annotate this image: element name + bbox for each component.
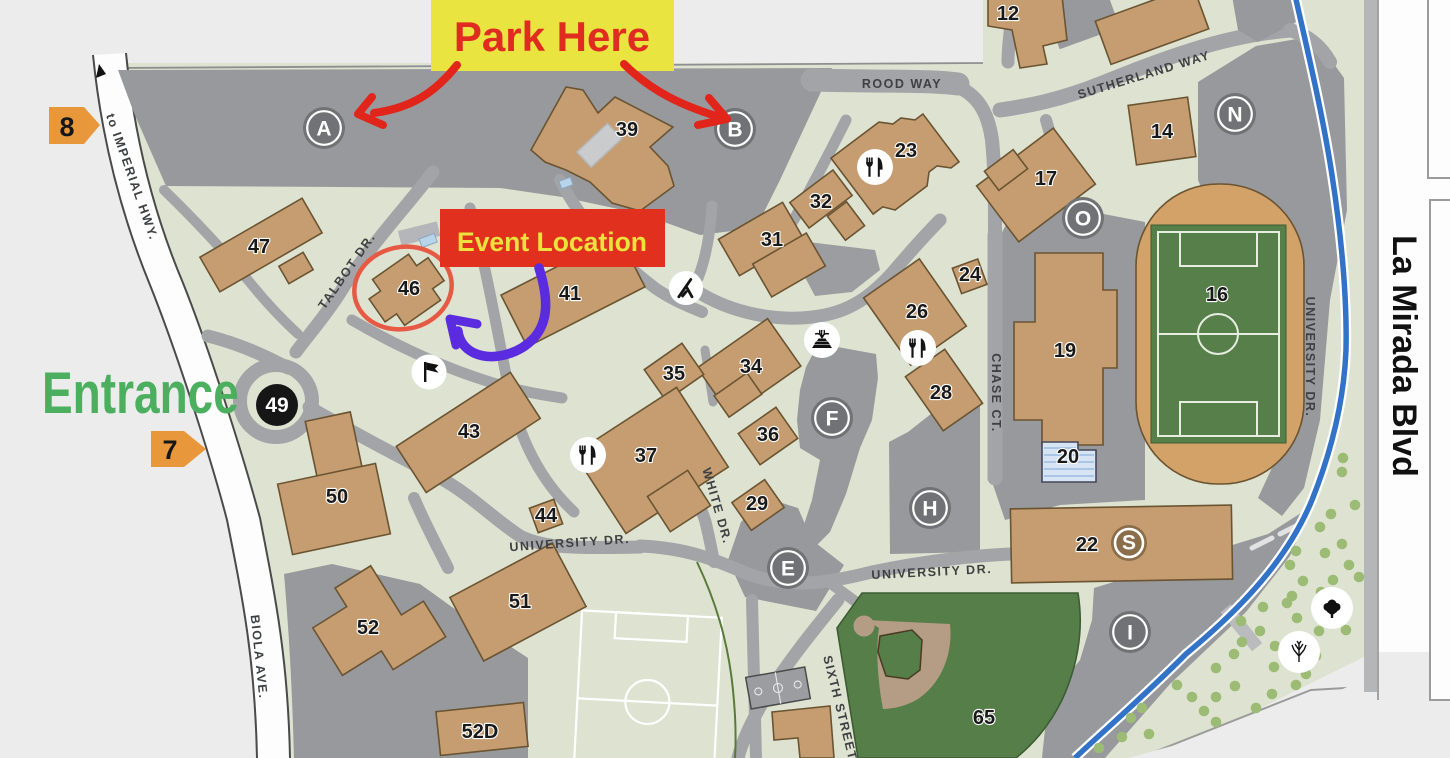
svg-text:20: 20 <box>1057 446 1079 468</box>
svg-text:35: 35 <box>663 363 685 385</box>
svg-text:47: 47 <box>248 236 270 258</box>
svg-text:F: F <box>826 408 839 431</box>
svg-text:H: H <box>922 498 937 521</box>
svg-text:7: 7 <box>162 435 177 465</box>
svg-text:41: 41 <box>559 283 581 305</box>
svg-text:23: 23 <box>895 140 917 162</box>
svg-text:32: 32 <box>810 191 832 213</box>
svg-text:52: 52 <box>357 617 379 639</box>
svg-text:Park Here: Park Here <box>454 13 650 60</box>
svg-text:50: 50 <box>326 486 348 508</box>
svg-text:37: 37 <box>635 445 657 467</box>
svg-text:Entrance: Entrance <box>42 361 239 427</box>
svg-text:UNIVERSITY DR.: UNIVERSITY DR. <box>1303 297 1317 418</box>
svg-text:La Mirada Blvd: La Mirada Blvd <box>1385 235 1423 477</box>
svg-text:O: O <box>1075 208 1091 231</box>
svg-text:17: 17 <box>1035 168 1057 190</box>
svg-text:N: N <box>1227 104 1242 127</box>
svg-text:E: E <box>781 558 795 581</box>
svg-text:A: A <box>316 118 331 141</box>
svg-text:34: 34 <box>740 356 763 378</box>
svg-text:8: 8 <box>59 112 74 142</box>
svg-text:51: 51 <box>509 591 531 613</box>
svg-text:46: 46 <box>398 278 420 300</box>
svg-text:44: 44 <box>535 505 558 527</box>
svg-text:19: 19 <box>1054 340 1076 362</box>
svg-text:52D: 52D <box>462 721 499 743</box>
svg-text:22: 22 <box>1076 534 1098 556</box>
svg-text:65: 65 <box>973 707 995 729</box>
svg-text:14: 14 <box>1151 121 1174 143</box>
svg-text:28: 28 <box>930 382 952 404</box>
svg-text:24: 24 <box>959 264 982 286</box>
svg-text:ROOD WAY: ROOD WAY <box>862 77 942 91</box>
svg-text:36: 36 <box>757 424 779 446</box>
svg-text:CHASE CT.: CHASE CT. <box>989 353 1003 432</box>
svg-text:26: 26 <box>906 301 928 323</box>
svg-text:16: 16 <box>1206 284 1228 306</box>
svg-text:I: I <box>1127 622 1133 645</box>
svg-text:29: 29 <box>746 493 768 515</box>
svg-text:49: 49 <box>265 394 288 417</box>
svg-text:31: 31 <box>761 229 783 251</box>
svg-text:43: 43 <box>458 421 480 443</box>
svg-text:Event Location: Event Location <box>457 227 647 257</box>
svg-text:12: 12 <box>997 3 1019 25</box>
svg-text:S: S <box>1122 532 1136 555</box>
svg-text:39: 39 <box>616 119 638 141</box>
